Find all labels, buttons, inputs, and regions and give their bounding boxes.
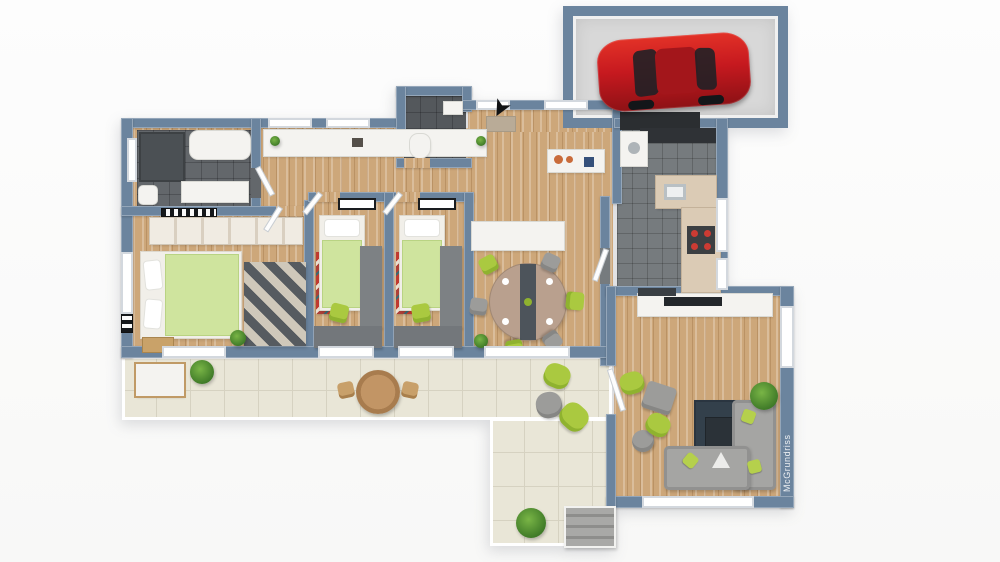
zigzag-rug: [244, 262, 306, 346]
window-hall-1: [268, 118, 312, 128]
pillow: [144, 260, 163, 290]
pillow: [144, 299, 162, 328]
decor-box: [584, 157, 594, 167]
stove: [687, 226, 715, 254]
bed-blanket: [402, 240, 442, 308]
kid1-desk: [314, 326, 382, 348]
watermark: McGrundriss: [782, 392, 796, 492]
toilet: [139, 186, 157, 204]
kid1-bed: [320, 216, 364, 310]
car-rear-glass: [694, 48, 717, 90]
window-kid2-south: [398, 346, 454, 358]
washer-door: [628, 142, 640, 154]
terrace-chair: [401, 381, 420, 400]
terrace-table: [356, 370, 400, 414]
bedroom-plant: [230, 330, 246, 346]
door-kitchen-east: [716, 258, 728, 290]
hall-sideboard: [264, 130, 486, 156]
window-kitchen-east: [716, 198, 728, 252]
tv: [664, 297, 722, 306]
car-wheel: [628, 99, 655, 110]
decor-bowl: [554, 155, 563, 164]
sofa-bottom-section: [664, 446, 750, 490]
kid1-wall-radiator: [338, 198, 376, 210]
window-hall-2: [326, 118, 370, 128]
dining-chair-gray: [469, 297, 488, 316]
washer: [621, 132, 647, 166]
decor-plant-icon: [270, 136, 280, 146]
door-wc: [404, 158, 430, 168]
decor-plant-icon: [476, 136, 486, 146]
kid2-chair: [411, 303, 432, 324]
floor-plan-3d: ➤: [0, 0, 1000, 562]
kid2-wall-radiator: [418, 198, 456, 210]
window-bathroom: [127, 138, 137, 182]
wall-living-west-upper: [606, 286, 616, 366]
wc-toilet: [410, 134, 430, 158]
terrace-door-dining: [484, 346, 570, 358]
kitchen-counter-stove: [682, 208, 720, 292]
wall-kid2-dining: [464, 192, 474, 352]
decor-item: [352, 138, 363, 147]
wall-vent: [122, 314, 132, 332]
double-bed: [141, 252, 241, 338]
bathtub: [190, 131, 250, 159]
window-entry: [544, 100, 588, 110]
shower: [139, 132, 185, 182]
terrace-bench: [136, 364, 184, 396]
kid2-desk: [394, 326, 462, 348]
kitchen-counter-sink: [656, 176, 716, 208]
living-plant: [750, 382, 778, 410]
tv-sideboard: [638, 294, 772, 316]
bed-blanket: [165, 254, 239, 336]
wall-living-west-lower: [606, 414, 616, 508]
wall-wc-north: [396, 86, 472, 96]
terrace-plant-2: [516, 508, 546, 538]
red-car: [596, 31, 753, 113]
kitchen-dark-cabinets: [640, 128, 716, 143]
garden-steps: [564, 506, 616, 548]
car-roof: [654, 46, 699, 95]
entry-console: [548, 150, 604, 172]
kid1-wardrobe: [360, 246, 382, 328]
wall-kid1-kid2: [384, 192, 394, 352]
bedroom-radiator: [162, 209, 216, 216]
kid2-wardrobe: [440, 246, 462, 328]
floorplan-screenshot: ➤: [0, 0, 1000, 562]
terrace-plant-1: [190, 360, 214, 384]
bed-blanket: [322, 240, 362, 308]
window-kid1-south: [318, 346, 374, 358]
pillow: [325, 220, 359, 236]
door-living-kitchen: [638, 288, 676, 296]
wardrobe-row: [150, 218, 302, 244]
wc-basin: [444, 102, 462, 114]
window-bedroom-south: [162, 346, 226, 358]
car-wheel: [698, 95, 725, 106]
pillow: [405, 220, 439, 236]
wall-wc-west: [396, 86, 406, 132]
window-bedroom-west: [121, 252, 133, 314]
kid2-bed: [400, 216, 444, 310]
window-living-south: [642, 496, 754, 508]
kitchen-sink: [664, 184, 686, 200]
terrace-chair: [337, 381, 356, 400]
dining-sideboard: [472, 222, 564, 250]
decor-bowl: [566, 156, 573, 163]
dining-chair-green: [565, 291, 585, 311]
vanity: [182, 182, 248, 202]
dining-table: [490, 264, 566, 340]
window-living-east: [780, 306, 794, 368]
